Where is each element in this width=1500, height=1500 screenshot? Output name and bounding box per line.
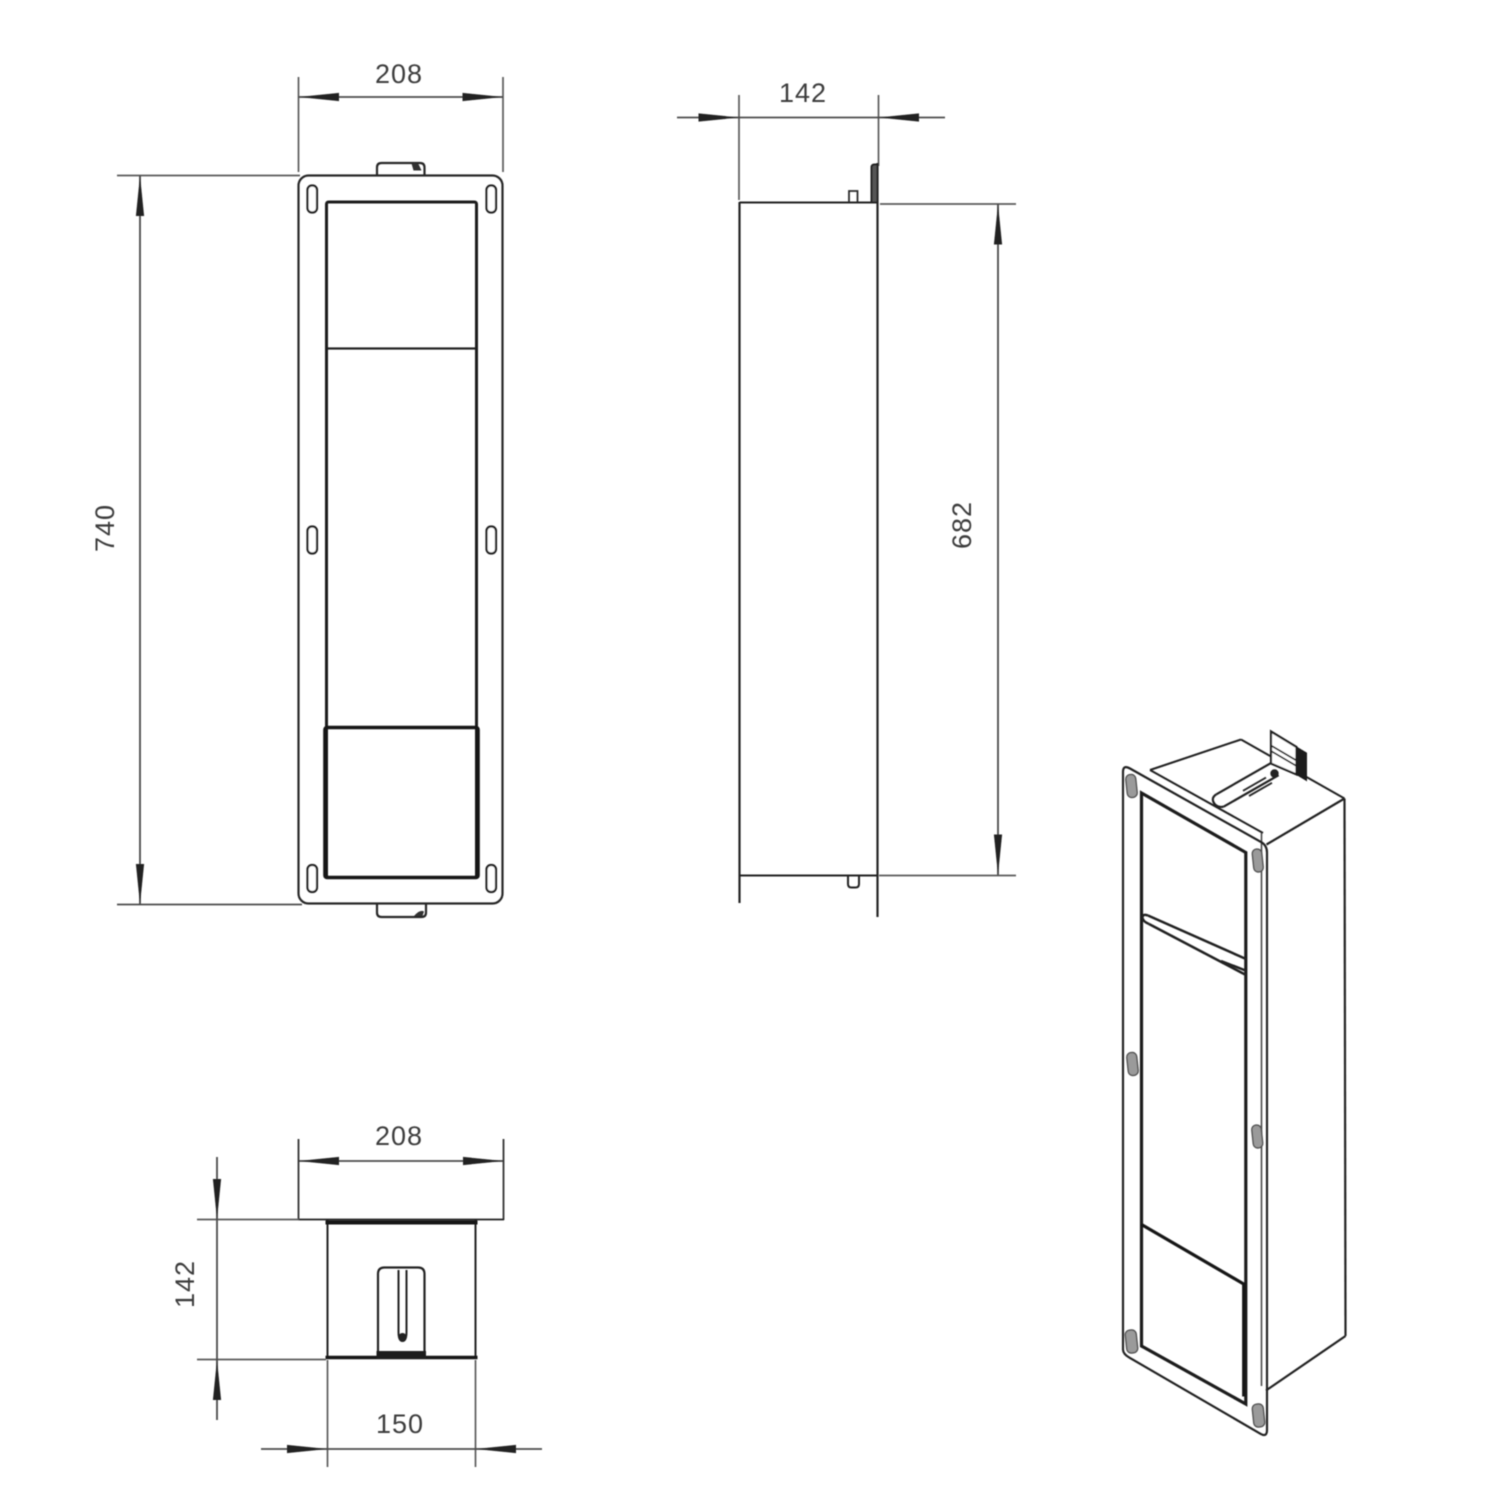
- svg-text:142: 142: [779, 78, 827, 108]
- svg-text:150: 150: [376, 1409, 424, 1439]
- svg-text:208: 208: [375, 1121, 423, 1151]
- svg-text:208: 208: [375, 59, 423, 89]
- svg-text:142: 142: [170, 1260, 200, 1308]
- svg-text:740: 740: [90, 504, 120, 552]
- svg-text:682: 682: [947, 501, 977, 549]
